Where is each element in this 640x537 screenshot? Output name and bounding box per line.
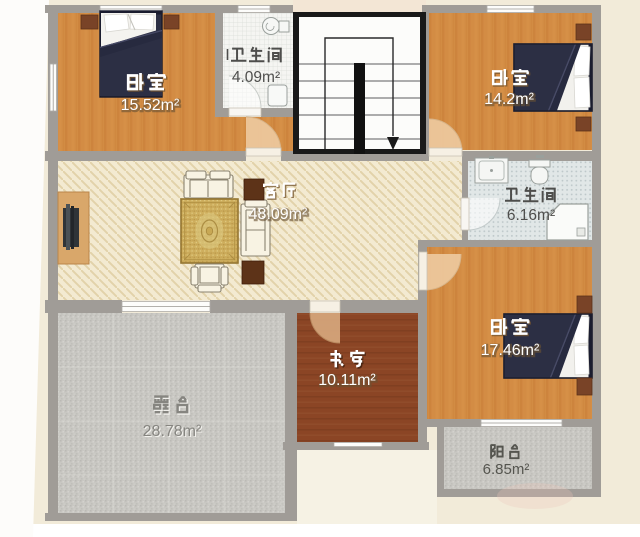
svg-text:10.11m²: 10.11m² (318, 372, 376, 389)
svg-text:17.46m²: 17.46m² (481, 342, 540, 359)
svg-text:6.85m²: 6.85m² (483, 461, 530, 478)
svg-text:28.78m²: 28.78m² (143, 423, 202, 440)
svg-text:14.2m²: 14.2m² (484, 91, 534, 108)
svg-text:6.16m²: 6.16m² (507, 207, 555, 224)
svg-text:48.09m²: 48.09m² (249, 206, 308, 223)
svg-text:4.09m²: 4.09m² (232, 69, 280, 86)
svg-text:15.52m²: 15.52m² (121, 97, 180, 114)
